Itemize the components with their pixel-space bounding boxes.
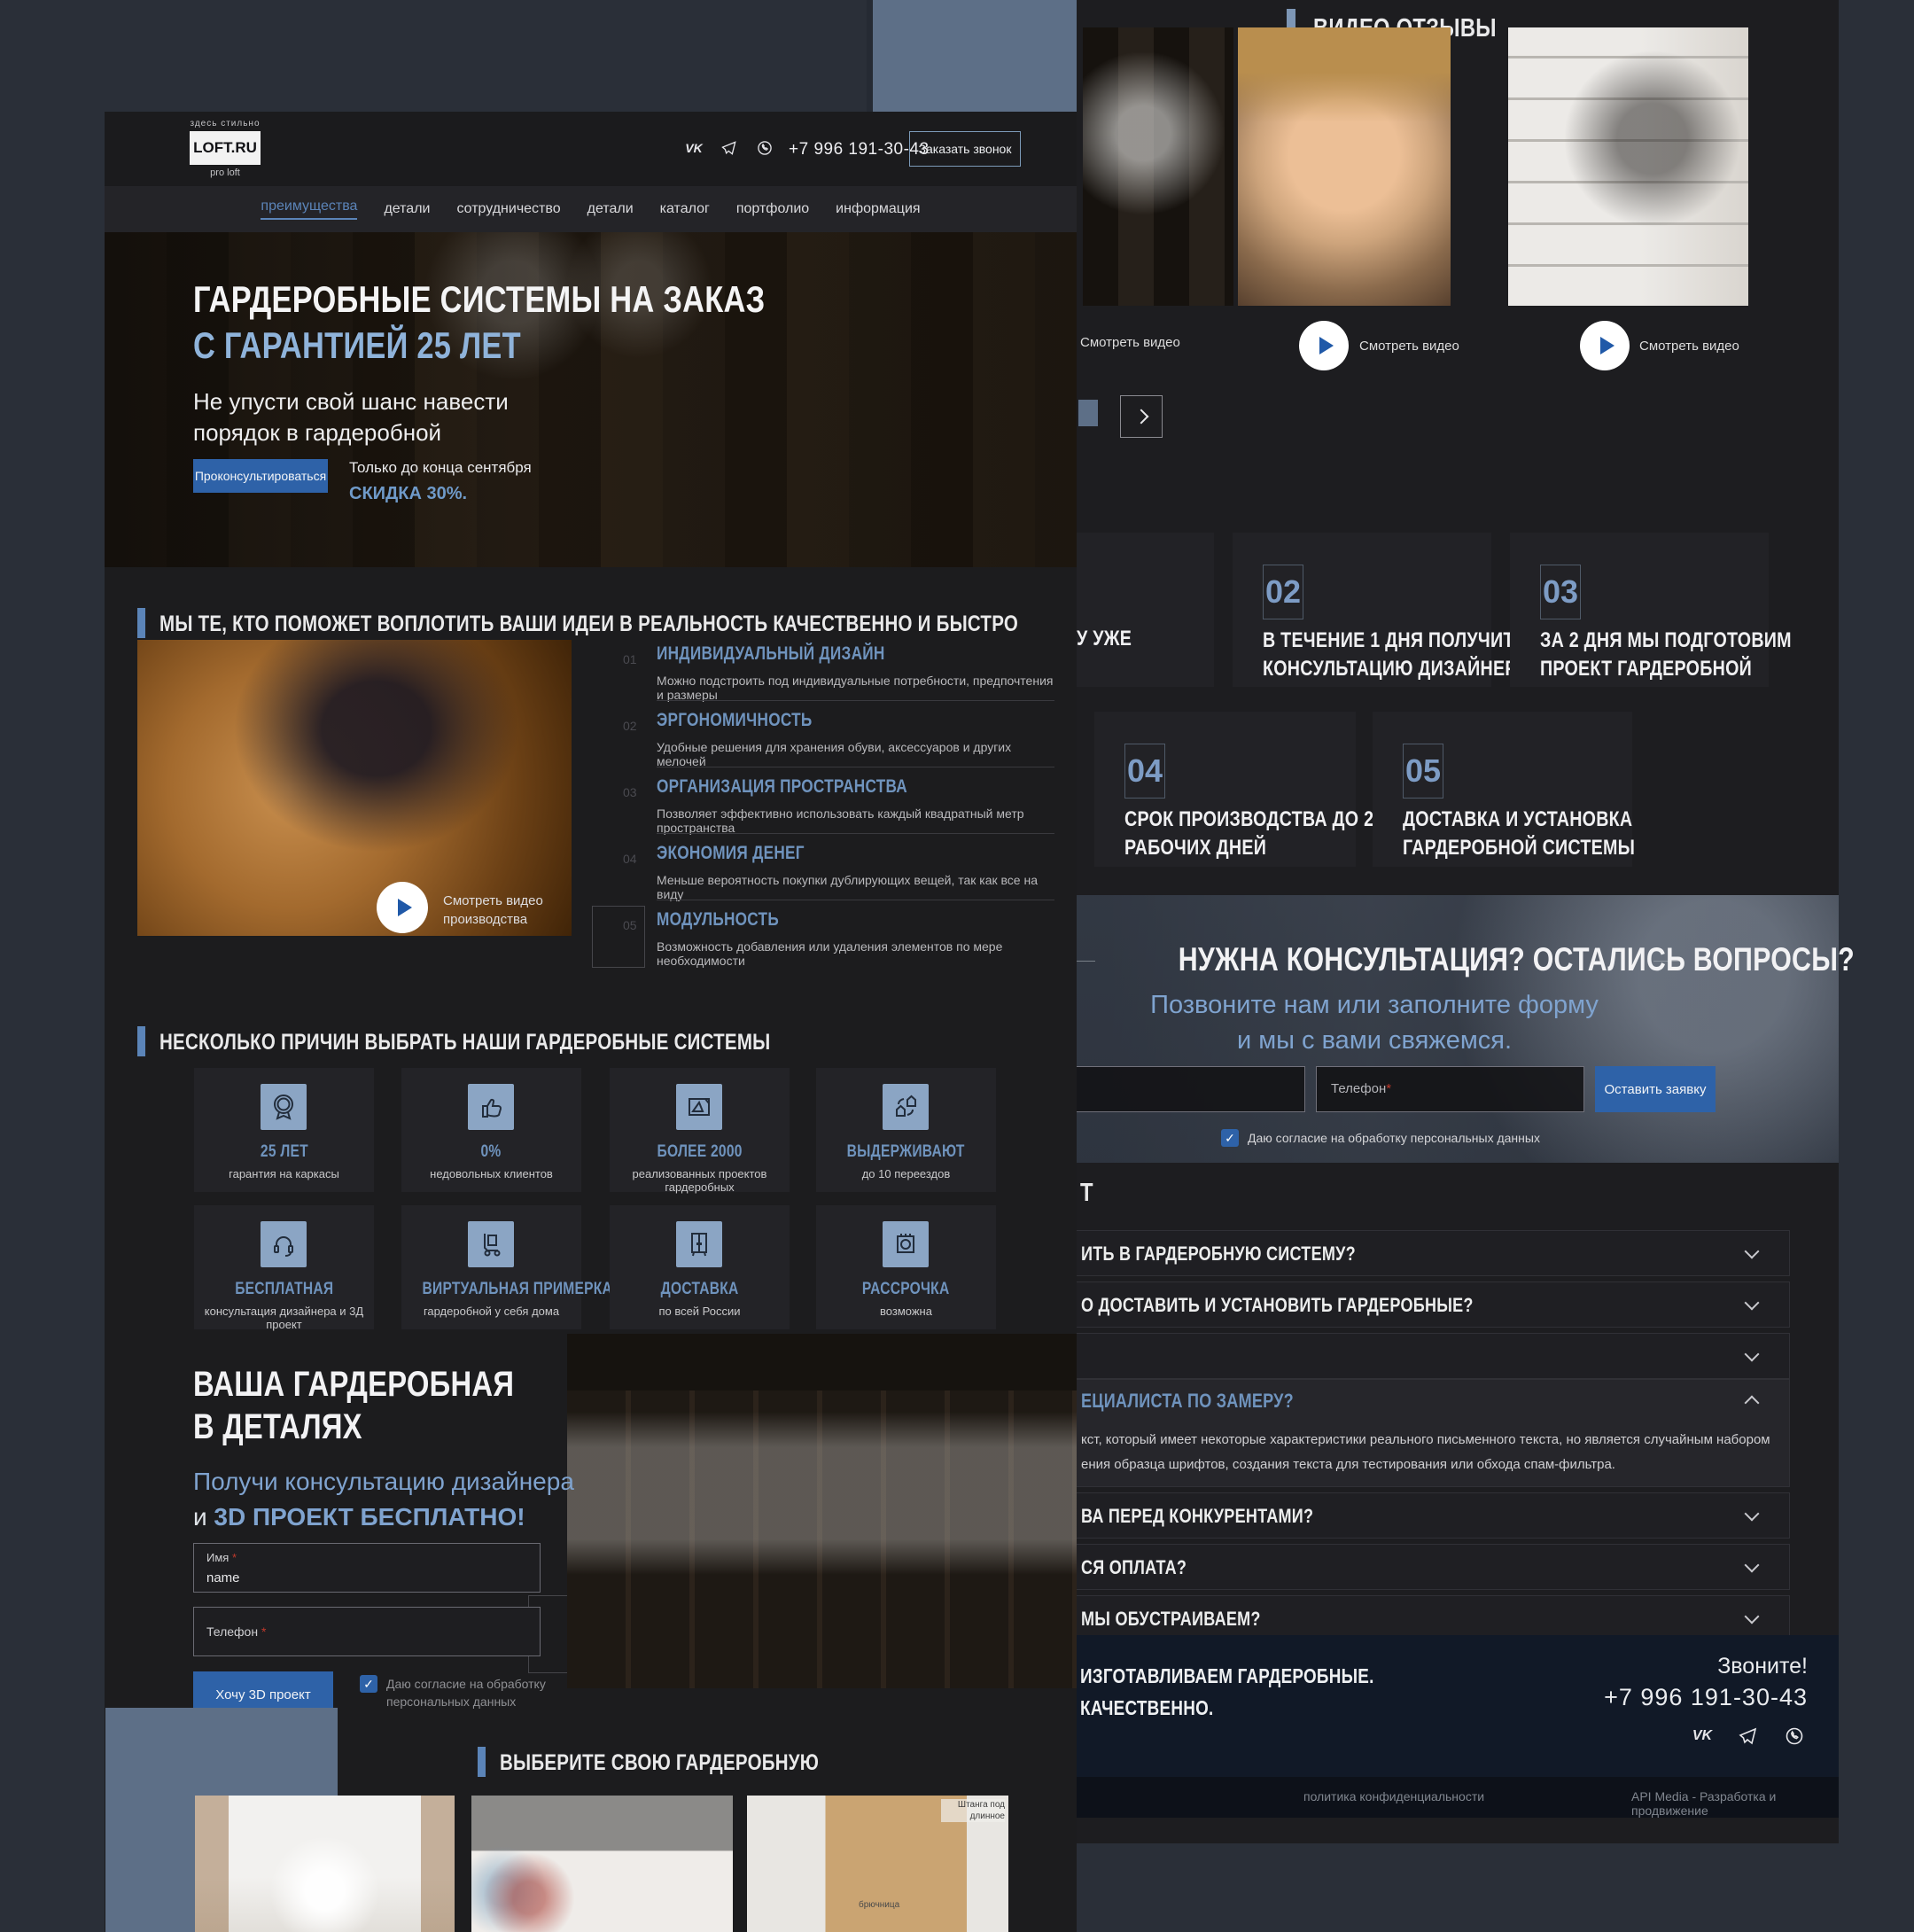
reason-card: РАССРОЧКА возможна — [816, 1205, 996, 1329]
footer-slogan: КАЧЕСТВЕННО. — [1080, 1696, 1243, 1720]
reason-title: БЕСПЛАТНАЯ — [194, 1280, 374, 1299]
reason-text: возможна — [821, 1305, 991, 1318]
privacy-link[interactable]: политика конфиденциальности — [1303, 1789, 1484, 1803]
chevron-down-icon — [1745, 1347, 1760, 1362]
step-label: ДОСТАВКА И УСТАНОВКАГАРДЕРОБНОЙ СИСТЕМЫ — [1403, 806, 1686, 862]
ideas-item-title: ОРГАНИЗАЦИЯ ПРОСТРАНСТВА — [657, 776, 962, 798]
hero-title: ГАРДЕРОБНЫЕ СИСТЕМЫ НА ЗАКАЗ — [193, 278, 891, 321]
nav-item[interactable]: информация — [836, 201, 920, 217]
phone-field[interactable]: Телефон* — [1316, 1066, 1584, 1112]
whatsapp-icon[interactable] — [1781, 1723, 1808, 1749]
reason-card: ВЫДЕРЖИВАЮТ до 10 переездов — [816, 1068, 996, 1192]
details-subtitle: Получи консультацию дизайнера — [193, 1468, 574, 1496]
consent-checkbox[interactable]: ✓ — [1221, 1129, 1239, 1147]
ideas-title: МЫ ТЕ, КТО ПОМОЖЕТ ВОПЛОТИТЬ ВАШИ ИДЕИ В… — [159, 612, 1207, 637]
reason-card: ВИРТУАЛЬНАЯ ПРИМЕРКА гардеробной у себя … — [401, 1205, 581, 1329]
nav-item[interactable]: портфолио — [736, 201, 809, 217]
play-icon[interactable] — [1580, 321, 1630, 370]
watch-video-link[interactable]: Смотреть видео — [1639, 339, 1739, 354]
installment-icon — [883, 1221, 929, 1267]
hero-subtitle: Не упусти свой шанс навести порядок в га… — [193, 386, 509, 448]
divider — [657, 700, 1054, 701]
header-socials: VK — [682, 136, 776, 160]
consultation-subtitle: Позвоните нам или заполните форму — [1104, 991, 1645, 1020]
nav-item[interactable]: детали — [384, 201, 430, 217]
phone-label: Телефон * — [206, 1624, 266, 1639]
watch-video-link[interactable]: Смотреть видео — [1359, 339, 1459, 354]
reason-text: гардеробной у себя дома — [407, 1305, 576, 1318]
telegram-icon[interactable] — [1735, 1723, 1762, 1749]
footer-phone[interactable]: +7 996 191-30-43 — [1365, 1684, 1808, 1711]
developer-credit[interactable]: API Media - Разработка и продвижение — [1631, 1789, 1839, 1818]
chevron-down-icon — [1745, 1609, 1760, 1624]
chevron-up-icon — [1745, 1396, 1760, 1411]
reason-card: БОЛЕЕ 2000 реализованных проектов гардер… — [610, 1068, 790, 1192]
relocation-icon — [883, 1084, 929, 1130]
ideas-item-number: 04 — [623, 852, 637, 866]
faq-title-fragment: Т — [1080, 1179, 1096, 1208]
faq-question: ИТЬ В ГАРДЕРОБНУЮ СИСТЕМУ? — [1081, 1243, 1416, 1266]
decor-outline-square — [592, 906, 645, 968]
reason-title: ВЫДЕРЖИВАЮТ — [816, 1142, 996, 1162]
telegram-icon[interactable] — [718, 136, 741, 160]
reason-card: 25 ЛЕТ гарантия на каркасы — [194, 1068, 374, 1192]
hero-section: ГАРДЕРОБНЫЕ СИСТЕМЫ НА ЗАКАЗ С ГАРАНТИЕЙ… — [105, 232, 1077, 567]
carousel-next-button[interactable] — [1120, 395, 1163, 438]
step-number: 04 — [1124, 744, 1165, 799]
call-request-button[interactable]: Заказать звонок — [909, 131, 1021, 167]
reason-title: ВИРТУАЛЬНАЯ ПРИМЕРКА — [401, 1280, 581, 1299]
thumb-up-icon — [468, 1084, 514, 1130]
details-title: В ДЕТАЛЯХ — [193, 1407, 400, 1447]
ideas-item-number: 03 — [623, 785, 637, 799]
step-number: 02 — [1263, 565, 1303, 619]
reason-text: до 10 переездов — [821, 1167, 991, 1180]
wardrobe-details-photo — [567, 1334, 1077, 1688]
faq-answer: кст, который имеет некоторые характерист… — [1081, 1428, 1772, 1477]
play-icon[interactable] — [1299, 321, 1349, 370]
reason-text: реализованных проектов гардеробных — [615, 1167, 784, 1194]
nav-item-advantages[interactable]: преимущества — [261, 199, 357, 220]
consultation-title: НУЖНА КОНСУЛЬТАЦИЯ? ОСТАЛИСЬ ВОПРОСЫ? — [1104, 941, 1645, 978]
submit-request-button[interactable]: Оставить заявку — [1595, 1066, 1716, 1112]
name-label: Имя * — [206, 1551, 237, 1564]
nav-item[interactable]: сотрудничество — [456, 201, 560, 217]
reason-text: недовольных клиентов — [407, 1167, 576, 1180]
design-canvas: ВИДЕО ОТЗЫВЫ Смотреть видео Смотреть вид… — [0, 0, 1914, 1932]
phone-placeholder: Телефон* — [1331, 1081, 1391, 1096]
logo-tagline-bottom: pro loft — [190, 167, 261, 178]
header-phone[interactable]: +7 996 191-30-43 — [789, 140, 930, 160]
ideas-item-title: ИНДИВИДУАЛЬНЫЙ ДИЗАЙН — [657, 643, 935, 665]
play-triangle-icon — [398, 899, 412, 916]
wardrobe-option-photo[interactable]: Штанга под длинное брючница — [747, 1796, 1008, 1932]
left-page: здесь стильно LOFT.RU pro loft VK +7 996… — [105, 112, 1077, 1932]
reason-title: БОЛЕЕ 2000 — [610, 1142, 790, 1162]
ideas-item-title: ЭРГОНОМИЧНОСТЬ — [657, 710, 846, 731]
details-title: ВАША ГАРДЕРОБНАЯ — [193, 1365, 585, 1405]
production-video-label[interactable]: Смотреть видео производства — [443, 892, 563, 929]
chevron-right-icon — [1134, 409, 1149, 425]
section-accent-bar — [137, 608, 145, 638]
section-accent-bar — [137, 1026, 145, 1056]
watch-video-link[interactable]: Смотреть видео — [1080, 335, 1180, 350]
main-nav: преимущества детали сотрудничество детал… — [105, 186, 1077, 232]
consent-label: Даю согласие на обработку персональных д… — [386, 1675, 555, 1710]
step-card: 05 ДОСТАВКА И УСТАНОВКАГАРДЕРОБНОЙ СИСТЕ… — [1373, 712, 1632, 867]
wardrobe-icon — [676, 1221, 722, 1267]
ideas-item-text: Позволяет эффективно использовать каждый… — [657, 806, 1054, 835]
chevron-down-icon — [1745, 1558, 1760, 1573]
blueprint-icon — [676, 1084, 722, 1130]
reason-title: РАССРОЧКА — [816, 1280, 996, 1299]
decor-slate-square — [1078, 400, 1098, 426]
wardrobe-annotation: Штанга под длинное — [941, 1799, 1005, 1822]
play-triangle-icon — [1600, 337, 1614, 354]
reasons-title: НЕСКОЛЬКО ПРИЧИН ВЫБРАТЬ НАШИ ГАРДЕРОБНЫ… — [159, 1030, 905, 1056]
promo-discount: СКИДКА 30%. — [349, 484, 467, 504]
choose-title: ВЫБЕРИТЕ СВОЮ ГАРДЕРОБНУЮ — [500, 1750, 889, 1776]
consent-label: Даю согласие на обработку персональных д… — [1248, 1131, 1540, 1145]
details-subtitle-bold: и 3D ПРОЕКТ БЕСПЛАТНО! — [193, 1503, 525, 1531]
section-accent-bar — [478, 1747, 486, 1777]
ideas-item-number: 01 — [623, 652, 637, 666]
reason-card: 0% недовольных клиентов — [401, 1068, 581, 1192]
faq-question: СЯ ОПЛАТА? — [1081, 1556, 1210, 1579]
whatsapp-icon[interactable] — [753, 136, 776, 160]
reason-card: БЕСПЛАТНАЯ консультация дизайнера и 3Д п… — [194, 1205, 374, 1329]
consultation-subtitle: и мы с вами свяжемся. — [1104, 1026, 1645, 1056]
ideas-item-number: 05 — [623, 918, 637, 932]
step-number: 05 — [1403, 744, 1443, 799]
logo[interactable]: здесь стильно LOFT.RU pro loft — [190, 119, 261, 178]
promo-deadline: Только до конца сентября — [349, 459, 532, 477]
ideas-item-text: Возможность добавления или удаления элем… — [657, 939, 1054, 968]
step-number: 03 — [1540, 565, 1581, 619]
step-card: 03 ЗА 2 ДНЯ МЫ ПОДГОТОВИМПРОЕКТ ГАРДЕРОБ… — [1510, 533, 1769, 687]
faq-question: ВА ПЕРЕД КОНКУРЕНТАМИ? — [1081, 1505, 1365, 1528]
wardrobe-option-photo[interactable] — [195, 1796, 455, 1932]
ideas-item-title: МОДУЛЬНОСТЬ — [657, 909, 805, 931]
name-value: name — [206, 1570, 240, 1585]
guarantee-badge-icon — [261, 1084, 307, 1130]
vk-icon[interactable]: VK — [682, 136, 705, 160]
play-triangle-icon — [1319, 337, 1334, 354]
divider — [657, 833, 1054, 834]
ideas-item-text: Можно подстроить под индивидуальные потр… — [657, 674, 1054, 702]
video-thumbnail[interactable] — [1508, 27, 1748, 306]
consult-button[interactable]: Проконсультироваться — [193, 459, 328, 493]
footer-socials: VK — [1365, 1723, 1808, 1749]
footer-call-label: Звоните! — [1365, 1654, 1808, 1679]
reason-title: 0% — [401, 1142, 581, 1162]
ideas-item-number: 02 — [623, 719, 637, 733]
chevron-down-icon — [1745, 1244, 1760, 1259]
nav-item[interactable]: детали — [587, 201, 634, 217]
consent-checkbox[interactable]: ✓ — [360, 1675, 377, 1693]
hand-truck-icon — [468, 1221, 514, 1267]
wardrobe-option-photo[interactable] — [471, 1796, 733, 1932]
reason-title: ДОСТАВКА — [610, 1280, 790, 1299]
divider — [657, 767, 1054, 767]
step-card: 04 СРОК ПРОИЗВОДСТВА ДО 20РАБОЧИХ ДНЕЙ — [1094, 712, 1356, 867]
logo-tagline-top: здесь стильно — [190, 119, 261, 129]
reason-title: 25 ЛЕТ — [194, 1142, 374, 1162]
name-field[interactable]: Имя * name — [193, 1543, 541, 1593]
reason-text: гарантия на каркасы — [199, 1167, 369, 1180]
nav-item[interactable]: каталог — [660, 201, 710, 217]
reason-text: по всей России — [615, 1305, 784, 1318]
phone-field[interactable]: Телефон * — [193, 1607, 541, 1656]
faq-question: МЫ ОБУСТРАИВАЕМ? — [1081, 1608, 1300, 1631]
faq-question: ЕЦИАЛИСТА ПО ЗАМЕРУ? — [1081, 1390, 1341, 1413]
divider — [657, 900, 1054, 900]
ideas-item-text: Удобные решения для хранения обуви, аксе… — [657, 740, 1054, 768]
ideas-item-text: Меньше вероятность покупки дублирующих в… — [657, 873, 1054, 901]
video-thumbnail[interactable] — [1083, 27, 1233, 306]
step-label: ЗА 2 ДНЯ МЫ ПОДГОТОВИМПРОЕКТ ГАРДЕРОБНОЙ — [1540, 627, 1847, 683]
headset-icon — [261, 1221, 307, 1267]
video-thumbnail[interactable] — [1238, 27, 1451, 306]
production-play-icon[interactable] — [377, 882, 428, 933]
chevron-down-icon — [1745, 1507, 1760, 1522]
chevron-down-icon — [1745, 1296, 1760, 1311]
hero-title-accent: С ГАРАНТИЕЙ 25 ЛЕТ — [193, 324, 593, 367]
ideas-item-title: ЭКОНОМИЯ ДЕНЕГ — [657, 843, 836, 864]
wardrobe-annotation: брючница — [859, 1900, 899, 1910]
logo-box: LOFT.RU — [190, 131, 261, 165]
faq-question: О ДОСТАВИТЬ И УСТАНОВИТЬ ГАРДЕРОБНЫЕ? — [1081, 1294, 1560, 1317]
reason-text: консультация дизайнера и 3Д проект — [199, 1305, 369, 1331]
reason-card: ДОСТАВКА по всей России — [610, 1205, 790, 1329]
step-card: 02 В ТЕЧЕНИЕ 1 ДНЯ ПОЛУЧИТЕКОНСУЛЬТАЦИЮ … — [1233, 533, 1491, 687]
vk-icon[interactable]: VK — [1689, 1723, 1716, 1749]
